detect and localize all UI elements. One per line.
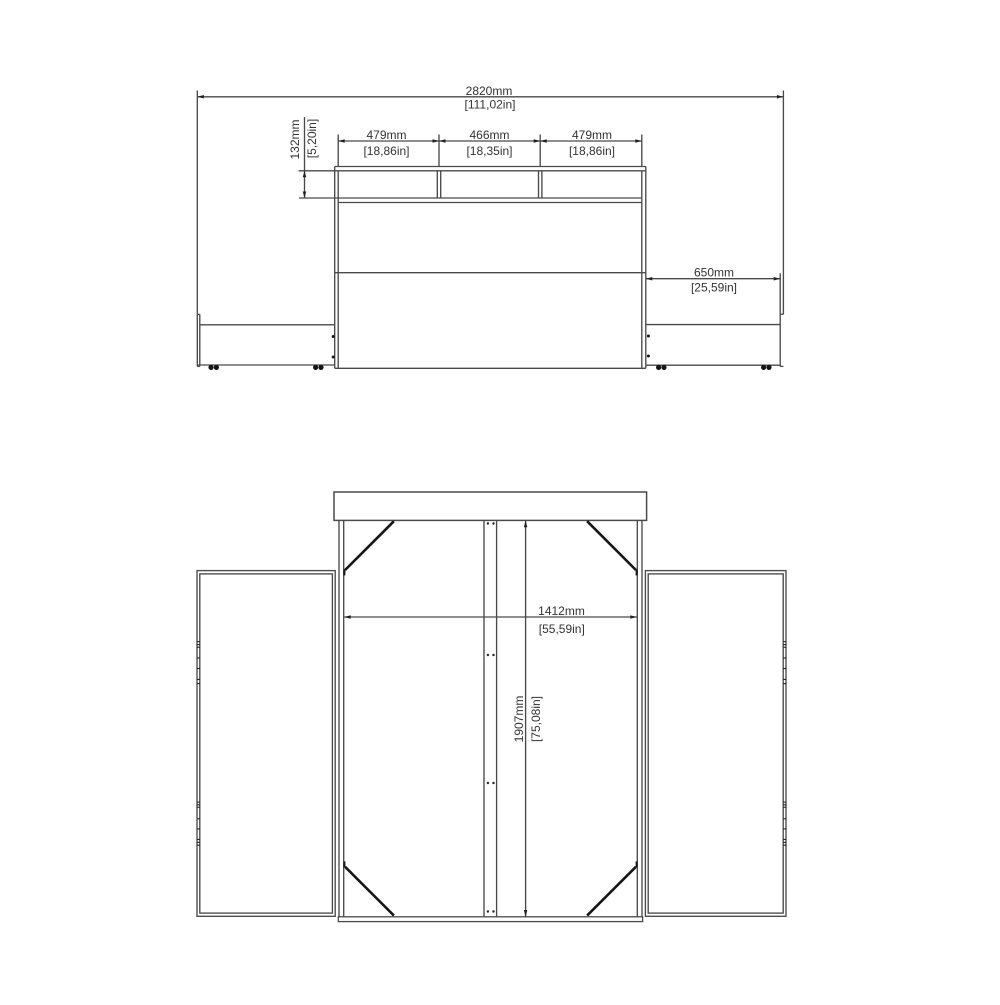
svg-text:[18,86in]: [18,86in]: [569, 144, 615, 158]
svg-text:[55,59in]: [55,59in]: [539, 622, 585, 636]
svg-text:[75,08in]: [75,08in]: [529, 696, 543, 742]
svg-text:[18,35in]: [18,35in]: [466, 144, 512, 158]
svg-text:[5,20in]: [5,20in]: [305, 119, 319, 158]
svg-text:1412mm: 1412mm: [538, 604, 585, 618]
svg-text:479mm: 479mm: [572, 128, 612, 142]
svg-text:2820mm: 2820mm: [466, 84, 513, 98]
svg-text:[25,59in]: [25,59in]: [691, 280, 737, 294]
svg-text:132mm: 132mm: [288, 119, 302, 159]
svg-text:1907mm: 1907mm: [512, 696, 526, 743]
svg-text:479mm: 479mm: [366, 128, 406, 142]
svg-text:650mm: 650mm: [694, 266, 734, 280]
svg-text:466mm: 466mm: [469, 128, 509, 142]
svg-text:[18,86in]: [18,86in]: [363, 144, 409, 158]
svg-text:[111,02in]: [111,02in]: [465, 98, 516, 112]
